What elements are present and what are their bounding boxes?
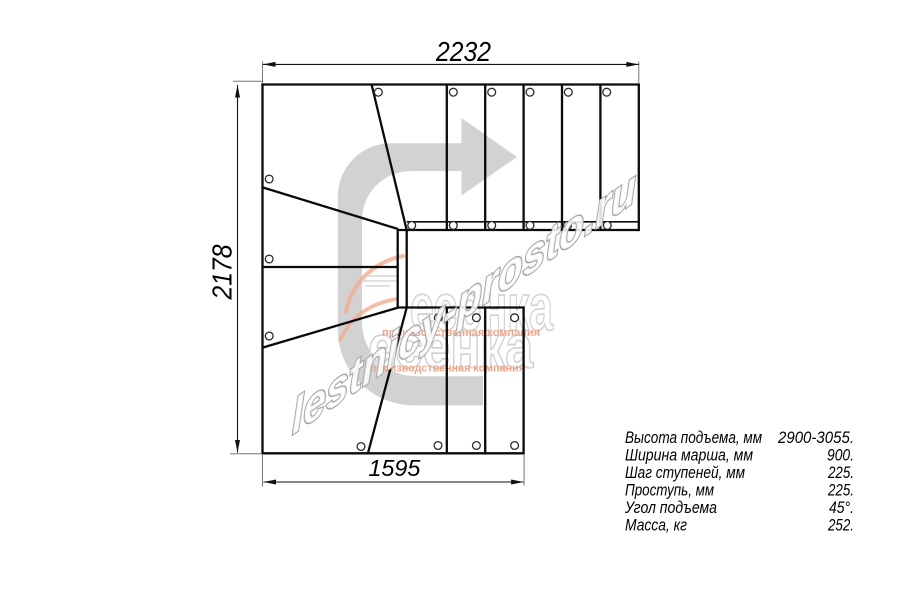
- svg-text:Ширина марша, мм: Ширина марша, мм: [625, 447, 753, 465]
- svg-text:Масса, кг: Масса, кг: [625, 517, 687, 535]
- svg-text:2900-3055.: 2900-3055.: [777, 429, 854, 447]
- svg-text:Шаг ступеней, мм: Шаг ступеней, мм: [625, 464, 745, 482]
- svg-text:Угол подъема: Угол подъема: [624, 499, 717, 517]
- svg-text:45°.: 45°.: [829, 499, 854, 517]
- svg-text:1595: 1595: [368, 455, 420, 481]
- svg-text:900.: 900.: [827, 447, 854, 465]
- svg-text:2232: 2232: [435, 36, 491, 67]
- svg-text:252.: 252.: [827, 517, 854, 535]
- svg-text:Высота подъема, мм: Высота подъема, мм: [625, 429, 762, 447]
- svg-text:225.: 225.: [827, 482, 854, 500]
- svg-text:2178: 2178: [207, 244, 238, 301]
- svg-text:Проступь, мм: Проступь, мм: [625, 482, 714, 500]
- svg-text:225.: 225.: [827, 464, 854, 482]
